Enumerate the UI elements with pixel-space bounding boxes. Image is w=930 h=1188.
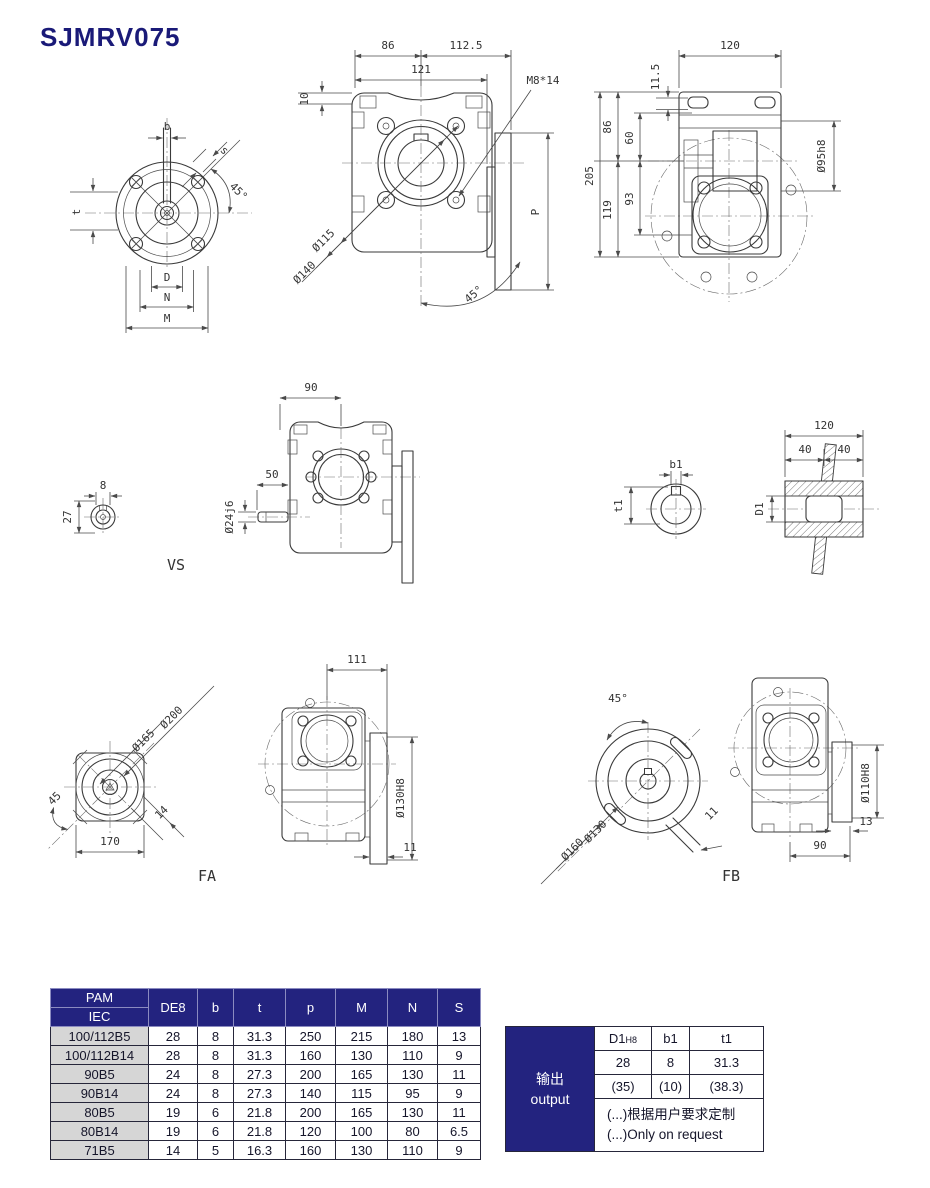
dim-95h8: Ø95h8 xyxy=(815,139,828,172)
view-fa-flange: Ø200 Ø165 45 14 170 FA xyxy=(45,686,216,885)
output-cell: (10) xyxy=(652,1075,690,1099)
dim-45c: 45° xyxy=(608,692,628,705)
dim-10: 10 xyxy=(298,92,311,105)
view-fb-side: Ø110H8 13 90 xyxy=(728,678,884,862)
view-mid: 90 50 Ø24j6 xyxy=(223,381,420,583)
pam-cell: 13 xyxy=(438,1027,481,1046)
table-row: 100/112B5 28 8 31.3 250 215 180 13 xyxy=(51,1027,481,1046)
pam-cell: 14 xyxy=(149,1141,198,1160)
pam-row-label: 80B14 xyxy=(51,1122,149,1141)
table-row: 80B14 19 6 21.8 120 100 80 6.5 xyxy=(51,1122,481,1141)
pam-cell: 5 xyxy=(198,1141,234,1160)
d1-label: D1 xyxy=(609,1031,626,1046)
pam-cell: 21.8 xyxy=(234,1122,286,1141)
pam-cell: 21.8 xyxy=(234,1103,286,1122)
drawing-canvas: b s 45° t D N M xyxy=(0,0,930,965)
dim-8: 8 xyxy=(100,479,107,492)
dim-50: 50 xyxy=(265,468,278,481)
dim-130: Ø130 xyxy=(582,818,610,846)
dim-170: 170 xyxy=(100,835,120,848)
col-header-m: M xyxy=(336,989,388,1027)
pam-cell: 24 xyxy=(149,1065,198,1084)
dim-120b: 120 xyxy=(814,419,834,432)
dim-45b: 45 xyxy=(45,789,64,808)
table-row: 71B5 14 5 16.3 160 130 110 9 xyxy=(51,1141,481,1160)
view-fa-side: 111 Ø130H8 11 xyxy=(258,653,418,864)
output-cell: 31.3 xyxy=(690,1051,764,1075)
dim-60: 60 xyxy=(623,131,636,144)
pam-cell: 6.5 xyxy=(438,1122,481,1141)
dim-P: P xyxy=(529,208,542,215)
view-front: 86 112.5 121 M8*14 10 Ø115 Ø140 45° P xyxy=(291,39,560,308)
output-label-en: output xyxy=(506,1089,594,1109)
col-header-b1: b1 xyxy=(652,1027,690,1051)
pam-corner-bottom: IEC xyxy=(51,1007,148,1026)
pam-cell: 250 xyxy=(286,1027,336,1046)
dim-90: 90 xyxy=(304,381,317,394)
pam-cell: 120 xyxy=(286,1122,336,1141)
pam-cell: 160 xyxy=(286,1141,336,1160)
pam-cell: 165 xyxy=(336,1065,388,1084)
dim-M: M xyxy=(164,312,171,325)
pam-cell: 9 xyxy=(438,1141,481,1160)
dim-120: 120 xyxy=(720,39,740,52)
view-fb-flange: 11 45° Ø130 Ø160 FB xyxy=(541,692,740,885)
dim-13: 13 xyxy=(859,815,872,828)
pam-cell: 27.3 xyxy=(234,1084,286,1103)
pam-cell: 28 xyxy=(149,1027,198,1046)
pam-cell: 95 xyxy=(388,1084,438,1103)
dim-130h8: Ø130H8 xyxy=(394,778,407,818)
d1-tolerance: H8 xyxy=(626,1035,638,1045)
output-side-cell: 输出 output xyxy=(506,1027,595,1152)
pam-cell: 11 xyxy=(438,1103,481,1122)
dim-11a: 11 xyxy=(403,841,416,854)
dim-b1: b1 xyxy=(669,458,682,471)
pam-cell: 24 xyxy=(149,1084,198,1103)
pam-cell: 8 xyxy=(198,1084,234,1103)
dim-D1: D1 xyxy=(753,502,766,515)
pam-row-label: 80B5 xyxy=(51,1103,149,1122)
dim-45: 45° xyxy=(462,283,486,306)
pam-cell: 28 xyxy=(149,1046,198,1065)
pam-cell: 11 xyxy=(438,1065,481,1084)
pam-cell: 180 xyxy=(388,1027,438,1046)
pam-cell: 130 xyxy=(388,1103,438,1122)
pam-cell: 9 xyxy=(438,1046,481,1065)
pam-cell: 110 xyxy=(388,1046,438,1065)
view-label-fb: FB xyxy=(722,867,740,885)
pam-cell: 19 xyxy=(149,1122,198,1141)
pam-cell: 6 xyxy=(198,1103,234,1122)
pam-cell: 110 xyxy=(388,1141,438,1160)
dim-110h8: Ø110H8 xyxy=(859,763,872,803)
dim-86b: 86 xyxy=(601,120,614,133)
table-row: 90B14 24 8 27.3 140 115 95 9 xyxy=(51,1084,481,1103)
pam-cell: 200 xyxy=(286,1103,336,1122)
pam-row-label: 90B14 xyxy=(51,1084,149,1103)
pam-cell: 130 xyxy=(336,1141,388,1160)
dim-205: 205 xyxy=(583,166,596,186)
pam-cell: 215 xyxy=(336,1027,388,1046)
pam-cell: 16.3 xyxy=(234,1141,286,1160)
output-note-en: (...)Only on request xyxy=(607,1125,763,1145)
pam-cell: 9 xyxy=(438,1084,481,1103)
pam-corner-cell: PAM IEC xyxy=(51,989,149,1027)
pam-iec-table: PAM IEC DE8 b t p M N S 100/112B5 28 8 3… xyxy=(50,988,481,1160)
output-cell: (35) xyxy=(595,1075,652,1099)
col-header-n: N xyxy=(388,989,438,1027)
pam-cell: 8 xyxy=(198,1065,234,1084)
col-header-de8: DE8 xyxy=(149,989,198,1027)
dim-D: D xyxy=(164,271,171,284)
dim-N: N xyxy=(164,291,171,304)
dim-40b: 40 xyxy=(837,443,850,456)
pam-row-label: 100/112B5 xyxy=(51,1027,149,1046)
pam-cell: 19 xyxy=(149,1103,198,1122)
pam-cell: 27.3 xyxy=(234,1065,286,1084)
dim-112-5: 112.5 xyxy=(449,39,482,52)
pam-cell: 31.3 xyxy=(234,1027,286,1046)
dim-11b: 11 xyxy=(702,804,721,823)
dim-14: 14 xyxy=(152,803,171,822)
dim-b: b xyxy=(164,120,171,133)
view-key-bore: b1 t1 xyxy=(612,458,706,539)
output-label-cn: 输出 xyxy=(506,1069,594,1089)
output-note-cell: (...)根据用户要求定制 (...)Only on request xyxy=(595,1099,764,1152)
output-table: 输出 output D1H8 b1 t1 28 8 31.3 (35) (10)… xyxy=(505,1026,764,1152)
col-header-s: S xyxy=(438,989,481,1027)
dim-t: t xyxy=(70,209,83,216)
output-header-row: 输出 output D1H8 b1 t1 xyxy=(506,1027,764,1051)
view-vs-shaft: 8 27 VS xyxy=(61,479,185,574)
pam-cell: 140 xyxy=(286,1084,336,1103)
view-side: 120 11.5 205 86 119 60 93 Ø95h8 xyxy=(583,39,841,302)
pam-cell: 130 xyxy=(336,1046,388,1065)
pam-row-label: 100/112B14 xyxy=(51,1046,149,1065)
col-header-p: p xyxy=(286,989,336,1027)
pam-cell: 80 xyxy=(388,1122,438,1141)
view-flange-front: b s 45° t D N M xyxy=(70,118,252,333)
col-header-d1h8: D1H8 xyxy=(595,1027,652,1051)
dim-86: 86 xyxy=(381,39,394,52)
table-row: 100/112B14 28 8 31.3 160 130 110 9 xyxy=(51,1046,481,1065)
dim-11-5: 11.5 xyxy=(649,64,662,91)
pam-cell: 165 xyxy=(336,1103,388,1122)
view-label-fa: FA xyxy=(198,867,216,885)
dim-90b: 90 xyxy=(813,839,826,852)
datasheet-page: SJMRV075 xyxy=(0,0,930,1188)
dim-m8x14: M8*14 xyxy=(526,74,559,87)
pam-corner-top: PAM xyxy=(51,989,148,1007)
table-row: 90B5 24 8 27.3 200 165 130 11 xyxy=(51,1065,481,1084)
dim-200: Ø200 xyxy=(158,704,186,732)
pam-row-label: 90B5 xyxy=(51,1065,149,1084)
col-header-b: b xyxy=(198,989,234,1027)
dim-121: 121 xyxy=(411,63,431,76)
pam-cell: 160 xyxy=(286,1046,336,1065)
pam-row-label: 71B5 xyxy=(51,1141,149,1160)
pam-cell: 6 xyxy=(198,1122,234,1141)
col-header-t1: t1 xyxy=(690,1027,764,1051)
output-cell: 8 xyxy=(652,1051,690,1075)
dim-27: 27 xyxy=(61,510,74,523)
dim-93: 93 xyxy=(623,192,636,205)
dim-t1: t1 xyxy=(612,499,625,512)
view-hollow-shaft: 120 40 40 D1 xyxy=(753,419,880,574)
pam-cell: 8 xyxy=(198,1027,234,1046)
dim-40a: 40 xyxy=(798,443,811,456)
pam-cell: 100 xyxy=(336,1122,388,1141)
pam-cell: 8 xyxy=(198,1046,234,1065)
pam-cell: 200 xyxy=(286,1065,336,1084)
dim-24j6: Ø24j6 xyxy=(223,500,236,533)
table-row: 80B5 19 6 21.8 200 165 130 11 xyxy=(51,1103,481,1122)
pam-cell: 115 xyxy=(336,1084,388,1103)
dim-160: Ø160 xyxy=(559,836,587,864)
col-header-t: t xyxy=(234,989,286,1027)
dim-140: Ø140 xyxy=(291,259,319,287)
output-note-cn: (...)根据用户要求定制 xyxy=(607,1105,763,1125)
output-cell: 28 xyxy=(595,1051,652,1075)
pam-cell: 31.3 xyxy=(234,1046,286,1065)
view-label-vs: VS xyxy=(167,556,185,574)
dim-119: 119 xyxy=(601,200,614,220)
pam-header-row: PAM IEC DE8 b t p M N S xyxy=(51,989,481,1027)
dim-111: 111 xyxy=(347,653,367,666)
pam-cell: 130 xyxy=(388,1065,438,1084)
output-cell: (38.3) xyxy=(690,1075,764,1099)
